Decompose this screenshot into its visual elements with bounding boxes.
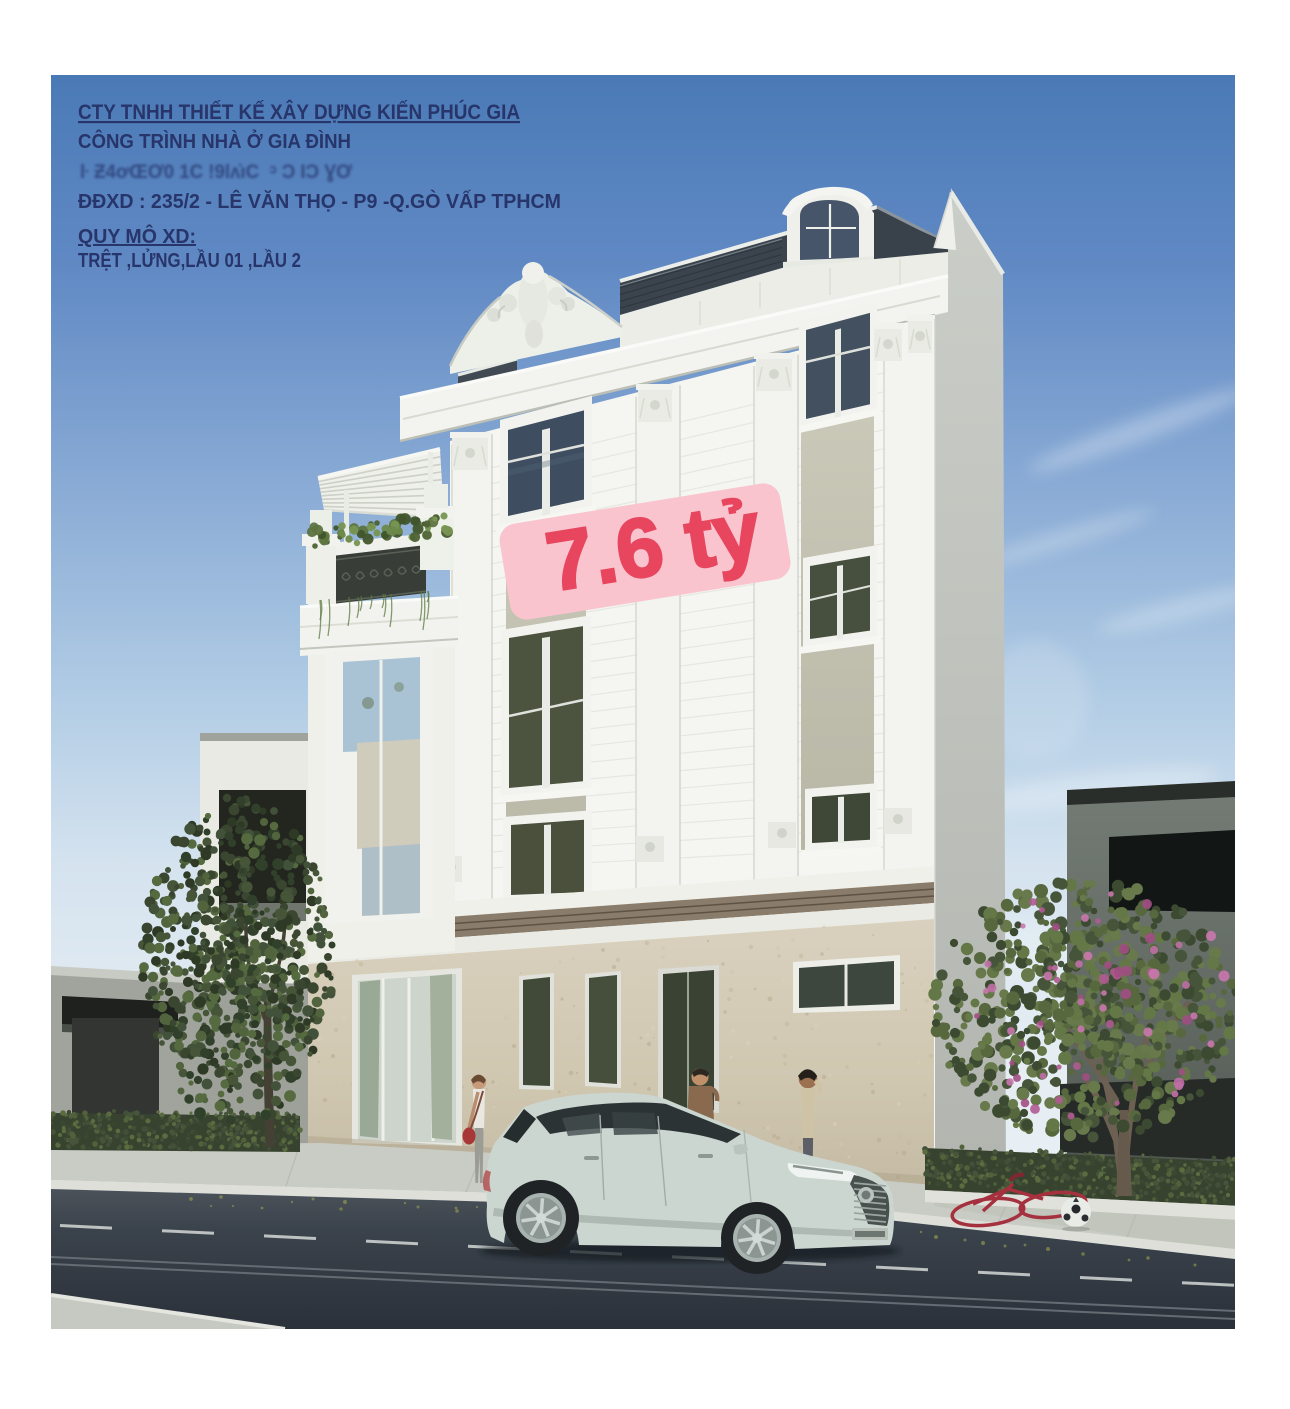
svg-text:ĐĐXD : 235/2 - LÊ VĂN THỌ - P9: ĐĐXD : 235/2 - LÊ VĂN THỌ - P9 -Q.GÒ VẤP… <box>78 189 561 213</box>
svg-text:ŀ Ƶ4ơŒƠ0 1C !9lᴧ̇ıC ᵓ Ɔ ƖƆ ƔƠ: ŀ Ƶ4ơŒƠ0 1C !9lᴧ̇ıC ᵓ Ɔ ƖƆ ƔƠ <box>80 162 353 183</box>
svg-text:QUY MÔ XD:: QUY MÔ XD: <box>78 224 196 248</box>
svg-text:TRỆT ,LỬNG,LẦU 01 ,LẦU 2: TRỆT ,LỬNG,LẦU 01 ,LẦU 2 <box>78 248 301 272</box>
svg-text:CÔNG TRÌNH NHÀ Ở GIA ĐÌNH: CÔNG TRÌNH NHÀ Ở GIA ĐÌNH <box>78 129 351 153</box>
svg-text:CTY TNHH THIẾT KẾ XÂY DỰNG KIẾ: CTY TNHH THIẾT KẾ XÂY DỰNG KIẾN PHÚC GIA <box>78 99 520 124</box>
